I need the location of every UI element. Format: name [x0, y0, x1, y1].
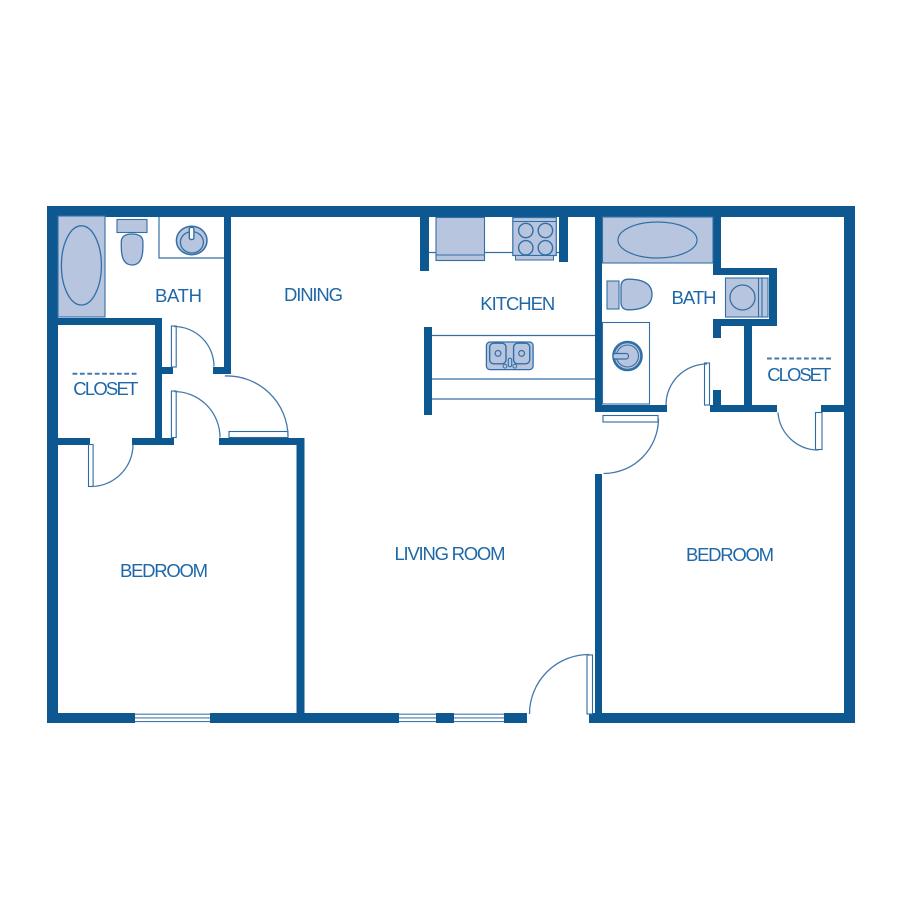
- svg-text:CLOSET: CLOSET: [73, 378, 138, 399]
- svg-text:DINING: DINING: [284, 284, 343, 305]
- svg-text:BATH: BATH: [155, 285, 202, 306]
- svg-text:BEDROOM: BEDROOM: [686, 544, 774, 565]
- svg-text:BEDROOM: BEDROOM: [120, 560, 208, 581]
- svg-text:LIVING ROOM: LIVING ROOM: [395, 543, 506, 564]
- svg-text:BATH: BATH: [672, 287, 717, 308]
- svg-text:KITCHEN: KITCHEN: [480, 293, 555, 314]
- svg-text:CLOSET: CLOSET: [767, 364, 831, 385]
